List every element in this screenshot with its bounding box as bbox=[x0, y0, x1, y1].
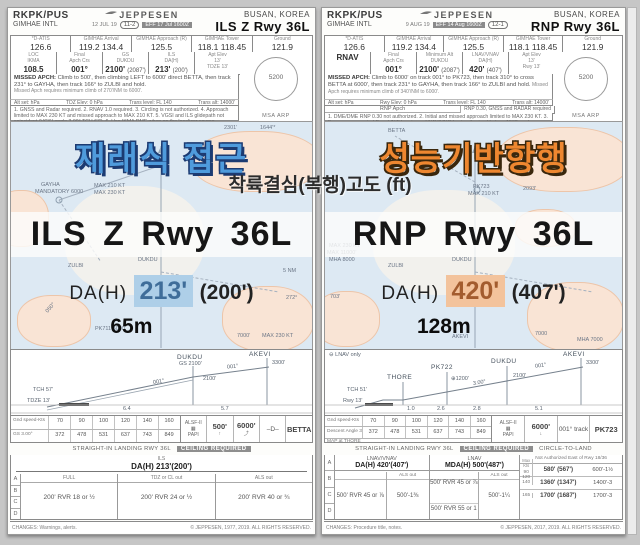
freq-cell: Ground121.9 bbox=[253, 36, 312, 53]
descent-rate-row: Descent Angle 3.00° 372 478 531 637 743 … bbox=[325, 427, 491, 438]
missed-step-cell: 6000'↓ bbox=[525, 416, 558, 442]
msa-altitude: 5200 bbox=[565, 74, 607, 81]
turn-arrow-icon: ⤴ bbox=[244, 430, 249, 437]
brief-cell: Apt Elev13'TDZE 13' bbox=[195, 52, 240, 74]
brand-name: JEPPESEN bbox=[92, 10, 192, 20]
brand-block: JEPPESEN 12 JUL 19 11-2 EFF 17 Jul 1600Z bbox=[92, 10, 192, 33]
msa-altitude: 5200 bbox=[255, 74, 297, 81]
hold-symbol-cell: –D– bbox=[260, 416, 286, 442]
profile-view: ⊖ LNAV only THORE PK722 ⊕1200' DUKDU 210… bbox=[324, 349, 623, 443]
chart-title-block: BUSAN, KOREA ILS Z Rwy 36L bbox=[215, 10, 310, 33]
chart-index: 12-1 bbox=[488, 21, 508, 29]
profile-distance: 5.7 bbox=[221, 406, 229, 412]
copyright: © JEPPESEN, 2017, 2019. ALL RIGHTS RESER… bbox=[500, 525, 621, 531]
brief-cell: FinalApch Crs001° bbox=[371, 52, 417, 74]
straight-in-label: STRAIGHT-IN LANDING RWY 36L bbox=[72, 446, 170, 452]
da-meters-annotation: 128m bbox=[325, 315, 563, 339]
changes-note: CHANGES: Procedure title, notes. bbox=[326, 525, 402, 531]
minimums-grid: A B C D FULL200' RVR 18 or ½ TDZ or CL o… bbox=[11, 474, 312, 519]
profile-fix: DUKDU bbox=[491, 358, 517, 365]
page: { "page": { "bg": "#c6c6c6", "center_cap… bbox=[0, 0, 640, 545]
speed-row: Gnd speed-Kts 70 90 100 120 140 160 bbox=[11, 416, 180, 430]
freq-cell: GIMHAE Arrival119.2 134.4 bbox=[71, 36, 131, 53]
lnav-vnav-main: 500' RVR 45 or ⅞ bbox=[335, 472, 387, 519]
lnav-main: 500' RVR 45 or ⅞500' RVR 55 or 1 bbox=[430, 472, 479, 519]
map-label: MAX 230 KT bbox=[262, 333, 293, 339]
ceiling-required-badge: CEILING REQUIRED bbox=[177, 446, 251, 452]
profile-distance: 5.1 bbox=[535, 406, 543, 412]
profile-fix: THORE bbox=[387, 374, 412, 381]
freq-cell: *D-ATIS126.6 bbox=[325, 36, 385, 53]
da-label: DA(H) bbox=[69, 283, 127, 304]
freq-cell: GIMHAE Approach (R)125.5 bbox=[444, 36, 504, 53]
altimeter-row: Alt set: hPa TDZ Elev: 0 hPa Trans level… bbox=[10, 99, 239, 106]
minimums-da: DA(H) 213'(200') bbox=[11, 462, 312, 471]
briefing-strip: RNAV FinalApch Crs001° Minimum AltDUKDU2… bbox=[324, 52, 555, 75]
profile-tch: TCH 57' bbox=[33, 387, 53, 393]
direct-symbol-icon: –D– bbox=[267, 426, 279, 433]
chart-date: 9 AUG 19 bbox=[406, 22, 430, 28]
map-label: DUKDU bbox=[138, 257, 158, 263]
circle-to-land-column: Not Authorized East of Rwy 18/36 Max Kts… bbox=[520, 455, 622, 519]
lnav-only-note: ⊖ LNAV only bbox=[329, 352, 361, 358]
jeppesen-logo-icon bbox=[420, 10, 432, 16]
enlarged-procedure-title: ILS Z Rwy 36L bbox=[11, 212, 312, 257]
missed-approach-text: MISSED APCH: Climb to 500', then climbin… bbox=[10, 74, 239, 99]
minimums-table: A B C D LNAV/VNAV DA(H) 420'(407') 500' … bbox=[324, 455, 623, 520]
brief-cell: LNAV/VNAVDA(H)420' (407') bbox=[463, 52, 509, 74]
profile-fix-altitude: GS 2100' bbox=[179, 361, 202, 367]
minimums-col-full: FULL200' RVR 18 or ½ bbox=[21, 474, 118, 519]
page-edge-strip bbox=[627, 7, 637, 535]
missed-approach-text: MISSED APCH: Climb to 6000' on track 001… bbox=[324, 74, 553, 99]
brief-cell: GSDUKDU2100' (2087') bbox=[103, 52, 149, 74]
msa-box: 5200 MSA ARP bbox=[240, 52, 313, 122]
lnav-als-out: ALS out500'-1¼ bbox=[479, 472, 519, 519]
brief-cell: Apt Elev13'Rwy 13' bbox=[509, 52, 554, 74]
descent-rate-row: GS 3.00° 372 478 531 637 743 849 bbox=[11, 430, 180, 443]
chart-procedure-title: ILS Z Rwy 36L bbox=[215, 19, 310, 34]
papi-cell: ALSF-II▦PAPI bbox=[492, 416, 525, 442]
brief-cell: FinalApch Crs001° bbox=[57, 52, 103, 74]
aircraft-category-column: A B C D bbox=[11, 474, 21, 519]
map-label: ZULBI bbox=[388, 263, 404, 269]
profile-fix-altitude: ⊕1200' bbox=[451, 376, 469, 382]
profile-distance: 2.6 bbox=[437, 406, 445, 412]
map-label: DUKDU bbox=[452, 257, 472, 263]
map-label: MHA 8000 bbox=[329, 257, 355, 263]
ceiling-required-badge: CEILING REQUIRED bbox=[460, 446, 534, 452]
chart-city: BUSAN, KOREA bbox=[531, 10, 620, 19]
lnav-vnav-als-out: ALS out500'-1⅜ bbox=[387, 472, 429, 519]
profile-distance: 2.8 bbox=[473, 406, 481, 412]
chart-dates: 12 JUL 19 11-2 EFF 17 Jul 1600Z bbox=[92, 21, 192, 29]
profile-fix: PK722 bbox=[431, 364, 453, 371]
map-label: 2301' bbox=[224, 125, 237, 131]
missed-step-cell: 001° track bbox=[558, 416, 591, 442]
chart-header: RKPK/PUS GIMHAE INTL JEPPESEN 9 AUG 19 E… bbox=[327, 10, 620, 33]
airport-id-block: RKPK/PUS GIMHAE INTL bbox=[13, 10, 69, 33]
brief-cell: ILSDA(H)213' (200') bbox=[149, 52, 195, 74]
chart-header: RKPK/PUS GIMHAE INTL JEPPESEN 12 JUL 19 … bbox=[13, 10, 310, 33]
enlarged-procedure-title: RNP Rwy 36L bbox=[325, 212, 622, 257]
profile-tch: TCH 51' bbox=[347, 387, 367, 393]
plan-view-map: 2301' 1644'* GAYHA MANDATORY 6000 MAX 21… bbox=[10, 121, 313, 351]
airport-icao: RKPK/PUS bbox=[327, 10, 383, 21]
msa-circle-icon: 5200 bbox=[564, 57, 608, 101]
freq-cell: GIMHAE Tower118.1 118.45 bbox=[192, 36, 252, 53]
divider bbox=[16, 471, 307, 472]
chart-ils: RKPK/PUS GIMHAE INTL JEPPESEN 12 JUL 19 … bbox=[7, 7, 316, 535]
rnp-label: RNP Apch bbox=[325, 106, 461, 113]
msa-circle-icon: 5200 bbox=[254, 57, 298, 101]
profile-altitude: 2100' bbox=[203, 376, 216, 382]
freq-cell: GIMHAE Approach (R)125.5 bbox=[132, 36, 192, 53]
minimums-col-tdz-out: TDZ or CL out200' RVR 24 or ½ bbox=[118, 474, 215, 519]
da-meters-annotation: 65m bbox=[11, 315, 252, 339]
changes-note: CHANGES: Warnings, alerts. bbox=[12, 525, 77, 531]
aircraft-category-column: A B C D bbox=[325, 455, 335, 519]
msa-label: MSA ARP bbox=[550, 113, 622, 119]
missed-approach-note: Missed Apch requires minimum climb of 27… bbox=[14, 89, 235, 95]
brand-name: JEPPESEN bbox=[406, 10, 508, 20]
circle-row: 140 1360' (1347') 1400'-3 bbox=[520, 477, 622, 490]
missed-approach-title: MISSED APCH: bbox=[14, 75, 56, 81]
up-arrow-icon: ↑ bbox=[219, 431, 222, 437]
da-value-highlight: 420' bbox=[446, 275, 506, 307]
freq-cell: GIMHAE Tower118.1 118.45 bbox=[504, 36, 564, 53]
chart-effective-date: EFF 17 Jul 1600Z bbox=[142, 22, 192, 28]
annotation-decision-altitude-caption: 착륙결심(복행)고도 (ft) bbox=[0, 170, 640, 197]
profile-tdze: TDZE 13' bbox=[27, 398, 50, 404]
msa-label: MSA ARP bbox=[240, 113, 312, 119]
da-label: DA(H) bbox=[381, 283, 439, 304]
map-label: 1644'* bbox=[260, 125, 275, 131]
airport-name: GIMHAE INTL bbox=[327, 21, 383, 28]
lnav-vnav-column: LNAV/VNAV DA(H) 420'(407') 500' RVR 45 o… bbox=[335, 455, 430, 519]
airport-name: GIMHAE INTL bbox=[13, 21, 69, 28]
chart-footer: CHANGES: Warnings, alerts. © JEPPESEN, 1… bbox=[10, 521, 313, 533]
chart-procedure-title: RNP Rwy 36L bbox=[531, 19, 620, 34]
brand-block: JEPPESEN 9 AUG 19 EFF 14 Aug 1600Z 12-1 bbox=[406, 10, 508, 33]
straight-in-label: STRAIGHT-IN LANDING RWY 36L bbox=[355, 446, 453, 452]
chart-index: 11-2 bbox=[120, 21, 140, 29]
profile-fix: AKEVI bbox=[563, 351, 585, 358]
freq-cell: GIMHAE Arrival119.2 134.4 bbox=[385, 36, 445, 53]
brief-cell: RNAV bbox=[325, 52, 371, 74]
chart-effective-date: EFF 14 Aug 1600Z bbox=[433, 22, 485, 28]
lnav-column: LNAV MDA(H) 500'(487') 500' RVR 45 or ⅞5… bbox=[430, 455, 521, 519]
plan-view-map: BETTA PK723 MAX 210 KT 2093' ZULBI DUKDU… bbox=[324, 121, 623, 351]
chart-dates: 9 AUG 19 EFF 14 Aug 1600Z 12-1 bbox=[406, 21, 508, 29]
lnav-vnav-values: 500' RVR 45 or ⅞ ALS out500'-1⅜ bbox=[335, 472, 429, 519]
brief-cell: Minimum AltDUKDU2100' (2087') bbox=[417, 52, 463, 74]
lnav-values: 500' RVR 45 or ⅞500' RVR 55 or 1 ALS out… bbox=[430, 472, 520, 519]
copyright: © JEPPESEN, 1977, 2019. ALL RIGHTS RESER… bbox=[190, 525, 311, 531]
missed-approach-cells: ALSF-II▦PAPI 500'↑ 6000'⤴ –D– BETTA bbox=[181, 416, 312, 442]
missed-approach-title: MISSED APCH: bbox=[328, 75, 370, 81]
conversion-table: Gnd speed-Kts 70 90 100 120 140 160 GS 3… bbox=[11, 415, 312, 442]
chart-rnp: RKPK/PUS GIMHAE INTL JEPPESEN 9 AUG 19 E… bbox=[321, 7, 626, 535]
map-label: ZULBI bbox=[68, 263, 84, 269]
circle-row: Max Kts90 120 580' (567') 600'-1½ bbox=[520, 464, 622, 477]
circle-to-land-label: CIRCLE-TO-LAND bbox=[539, 446, 592, 452]
hold-fix-cell: PK723 bbox=[590, 416, 622, 442]
da-height-paren: (200') bbox=[200, 281, 254, 304]
profile-fix-altitude: 2100' bbox=[513, 373, 526, 379]
speed-table: Gnd speed-Kts 70 90 100 120 140 160 Desc… bbox=[325, 416, 492, 442]
decision-altitude-row: DA(H) 213' (200') bbox=[11, 277, 312, 306]
profile-fix-altitude: 3300' bbox=[586, 360, 599, 366]
jeppesen-logo-icon bbox=[105, 10, 117, 16]
conversion-table: Gnd speed-Kts 70 90 100 120 140 160 Desc… bbox=[325, 415, 622, 442]
map-label: 5 NM bbox=[283, 268, 296, 274]
chart-date: 12 JUL 19 bbox=[92, 22, 117, 28]
profile-fix: DUKDU bbox=[177, 354, 203, 361]
msa-box: 5200 MSA ARP bbox=[550, 52, 623, 122]
chart-notes: 1. GNSS and Radar required. 2. RNAV 1.0 … bbox=[10, 106, 239, 121]
landing-strip-header: STRAIGHT-IN LANDING RWY 36L CEILING REQU… bbox=[324, 444, 623, 454]
profile-fix: AKEVI bbox=[249, 351, 271, 358]
profile-rwy-elev: Rwy 13' bbox=[343, 398, 362, 404]
decision-altitude-row: DA(H) 420' (407') bbox=[325, 277, 622, 306]
missed-step-cell: 500'↑ bbox=[207, 416, 233, 442]
rnp-value: RNP 0.30, GNSS and RADAR required bbox=[461, 106, 554, 113]
hold-fix-cell: BETTA bbox=[286, 416, 311, 442]
brief-cell: LOCIKMA108.5 bbox=[11, 52, 57, 74]
da-height-paren: (407') bbox=[512, 281, 566, 304]
speed-row: Gnd speed-Kts 70 90 100 120 140 160 bbox=[325, 416, 491, 427]
missed-approach-cells: ALSF-II▦PAPI 6000'↓ 001° track PK723 bbox=[492, 416, 622, 442]
profile-fix-altitude: 3300' bbox=[272, 360, 285, 366]
freq-cell: Ground121.9 bbox=[563, 36, 622, 53]
profile-distance: 1.0 bbox=[407, 406, 415, 412]
circle-row: 165 1700' (1687') 1700'-3 bbox=[520, 490, 622, 502]
da-value-highlight: 213' bbox=[134, 275, 194, 307]
briefing-strip: LOCIKMA108.5 FinalApch Crs001° GSDUKDU21… bbox=[10, 52, 241, 75]
minimums-grid: A B C D LNAV/VNAV DA(H) 420'(407') 500' … bbox=[325, 455, 622, 519]
minimums-approach-type: ILS bbox=[11, 455, 312, 462]
profile-view: DUKDU GS 2100' AKEVI 3300' 001° 2100' 00… bbox=[10, 349, 313, 443]
airport-id-block: RKPK/PUS GIMHAE INTL bbox=[327, 10, 383, 33]
missed-step-cell: 6000'⤴ bbox=[234, 416, 260, 442]
landing-strip-header: STRAIGHT-IN LANDING RWY 36L CEILING REQU… bbox=[10, 444, 313, 454]
minimums-table: ILS DA(H) 213'(200') A B C D FULL200' RV… bbox=[10, 455, 313, 520]
down-arrow-icon: ↓ bbox=[540, 431, 543, 437]
freq-cell: *D-ATIS126.6 bbox=[11, 36, 71, 53]
airport-icao: RKPK/PUS bbox=[13, 10, 69, 21]
speed-table: Gnd speed-Kts 70 90 100 120 140 160 GS 3… bbox=[11, 416, 181, 442]
chart-city: BUSAN, KOREA bbox=[215, 10, 310, 19]
altimeter-row: Alt set: hPa Rwy Elev: 0 hPa Trans level… bbox=[324, 99, 553, 106]
profile-distance: 6.4 bbox=[123, 406, 131, 412]
minimums-col-als-out: ALS out200' RVR 40 or ¾ bbox=[216, 474, 312, 519]
papi-cell: ALSF-II▦PAPI bbox=[181, 416, 207, 442]
chart-notes: 1. DME/DME RNP 0.30 not authorized. 2. I… bbox=[324, 113, 553, 121]
chart-footer: CHANGES: Procedure title, notes. © JEPPE… bbox=[324, 521, 623, 533]
map-label: MHA 7000 bbox=[577, 337, 603, 343]
chart-title-block: BUSAN, KOREA RNP Rwy 36L bbox=[531, 10, 620, 33]
